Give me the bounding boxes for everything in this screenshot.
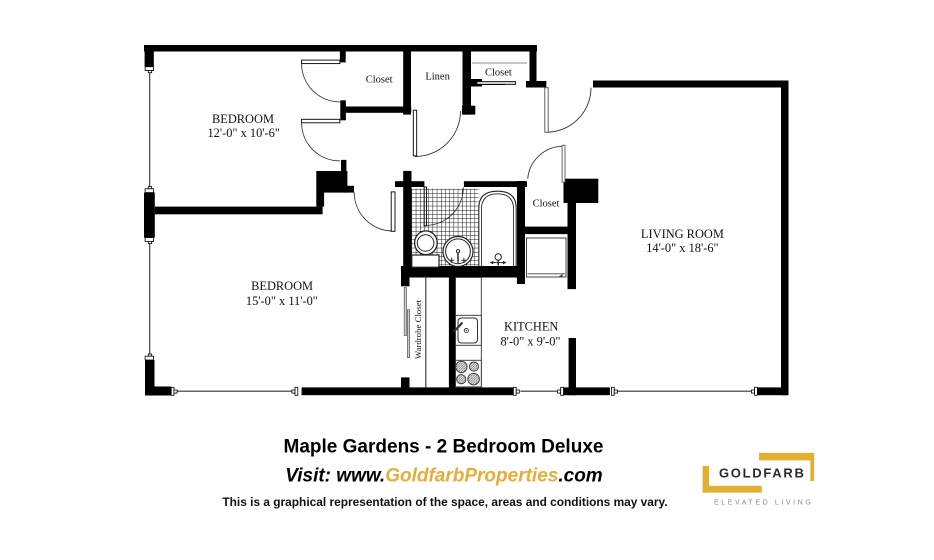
svg-text:Closet: Closet bbox=[366, 75, 393, 86]
svg-text:12'-0" x 10'-6": 12'-0" x 10'-6" bbox=[207, 126, 279, 140]
svg-text:BEDROOM: BEDROOM bbox=[251, 279, 313, 293]
svg-text:Wardrobe Closet: Wardrobe Closet bbox=[413, 299, 423, 359]
svg-text:Maple Gardens - 2 Bedroom Delu: Maple Gardens - 2 Bedroom Deluxe bbox=[284, 437, 604, 458]
svg-text:8'-0" x 9'-0": 8'-0" x 9'-0" bbox=[500, 334, 560, 348]
svg-text:15'-0" x 11'-0": 15'-0" x 11'-0" bbox=[246, 294, 318, 308]
svg-text:Visit: www.GoldfarbProperties.: Visit: www.GoldfarbProperties.com bbox=[285, 466, 603, 487]
svg-text:ELEVATED LIVING: ELEVATED LIVING bbox=[714, 499, 813, 506]
svg-text:Closet: Closet bbox=[533, 199, 560, 210]
svg-text:KITCHEN: KITCHEN bbox=[504, 320, 558, 334]
svg-text:BEDROOM: BEDROOM bbox=[212, 112, 274, 126]
svg-text:Linen: Linen bbox=[425, 72, 450, 83]
svg-text:14'-0" x 18'-6": 14'-0" x 18'-6" bbox=[646, 241, 718, 255]
svg-text:LIVING ROOM: LIVING ROOM bbox=[641, 227, 724, 241]
svg-text:Closet: Closet bbox=[485, 67, 512, 78]
svg-text:GOLDFARB: GOLDFARB bbox=[719, 466, 806, 481]
svg-text:This is a graphical representa: This is a graphical representation of th… bbox=[222, 495, 667, 509]
